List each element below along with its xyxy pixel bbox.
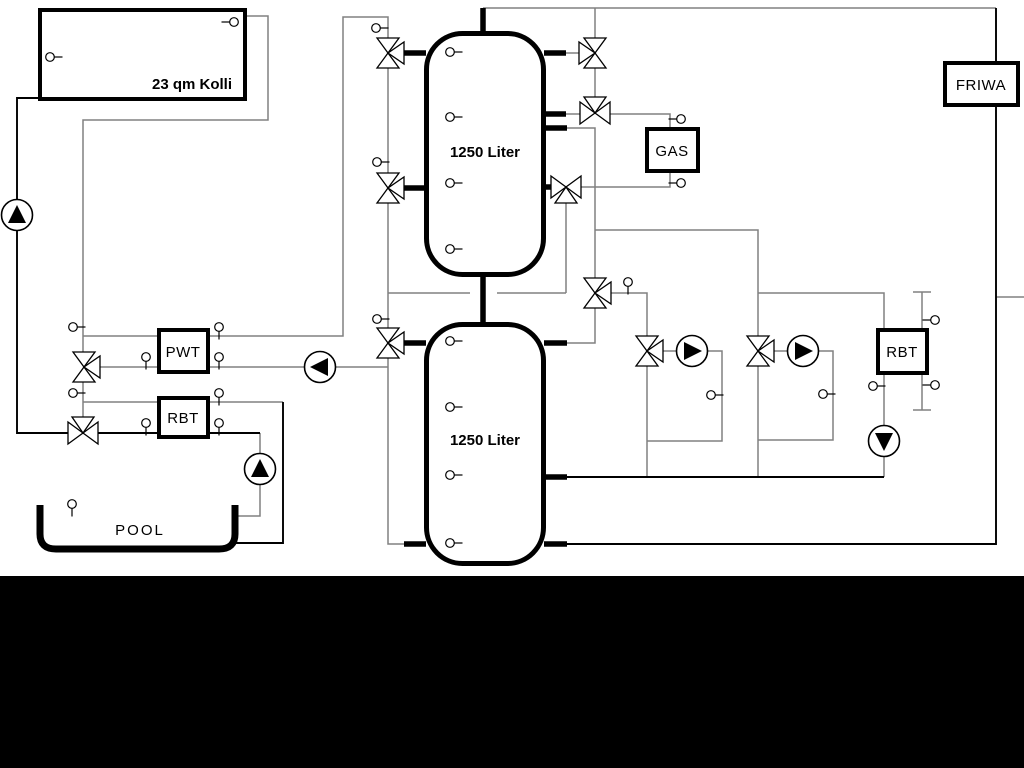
pool-basin: POOL [40, 505, 235, 549]
collector-label: 23 qm Kolli [152, 76, 232, 93]
three-way-valve [377, 38, 404, 68]
pump-heating-2 [788, 336, 819, 367]
friwa-box: FRIWA [945, 63, 1018, 105]
pump-heating-1 [677, 336, 708, 367]
temp-sensor [215, 389, 224, 406]
rbt-left-label: RBT [167, 410, 199, 427]
pool-label: POOL [115, 522, 165, 539]
three-way-valve [747, 336, 774, 366]
temp-sensor [373, 158, 390, 167]
solar-collector-box: 23 qm Kolli [40, 10, 245, 99]
temp-sensor [707, 391, 724, 400]
temp-sensor [215, 323, 224, 340]
pump-rbt [869, 426, 900, 457]
schematic-page: 23 qm Kolli 1250 Liter 1250 Liter GAS FR… [0, 0, 1024, 768]
temp-sensor [669, 115, 686, 124]
temp-sensor [624, 278, 633, 295]
temp-sensor [923, 381, 940, 390]
schematic: 23 qm Kolli 1250 Liter 1250 Liter GAS FR… [0, 0, 1024, 768]
three-way-valve [580, 97, 610, 124]
pump-pwt [305, 352, 336, 383]
three-way-valve [551, 176, 581, 203]
three-way-valve [68, 417, 98, 444]
pwt-label: PWT [166, 344, 201, 361]
gas-label: GAS [655, 143, 688, 160]
temp-sensor [373, 315, 390, 324]
temp-sensor [372, 24, 389, 33]
tank2-label: 1250 Liter [450, 432, 520, 449]
gas-boiler-box: GAS [647, 129, 698, 171]
three-way-valve [579, 38, 606, 68]
friwa-label: FRIWA [956, 77, 1006, 94]
rbt-right-label: RBT [886, 344, 918, 361]
temp-sensor [923, 316, 940, 325]
pump-pool [245, 454, 276, 485]
three-way-valve [377, 328, 404, 358]
temp-sensor [68, 500, 77, 517]
three-way-valve [584, 278, 611, 308]
bottom-black-bar [0, 576, 1024, 768]
three-way-valve [636, 336, 663, 366]
temp-sensor [869, 382, 886, 391]
pump-solar [2, 200, 33, 231]
three-way-valve [73, 352, 100, 382]
temp-sensor [669, 179, 686, 188]
rbt-heat-exchanger-box-right: RBT [878, 330, 927, 373]
three-way-valve [377, 173, 404, 203]
tank1-label: 1250 Liter [450, 144, 520, 161]
pwt-heat-exchanger-box: PWT [159, 330, 208, 372]
buffer-tank-1: 1250 Liter [427, 34, 544, 275]
buffer-tank-2: 1250 Liter [427, 325, 544, 564]
rbt-heat-exchanger-box-left: RBT [159, 398, 208, 437]
